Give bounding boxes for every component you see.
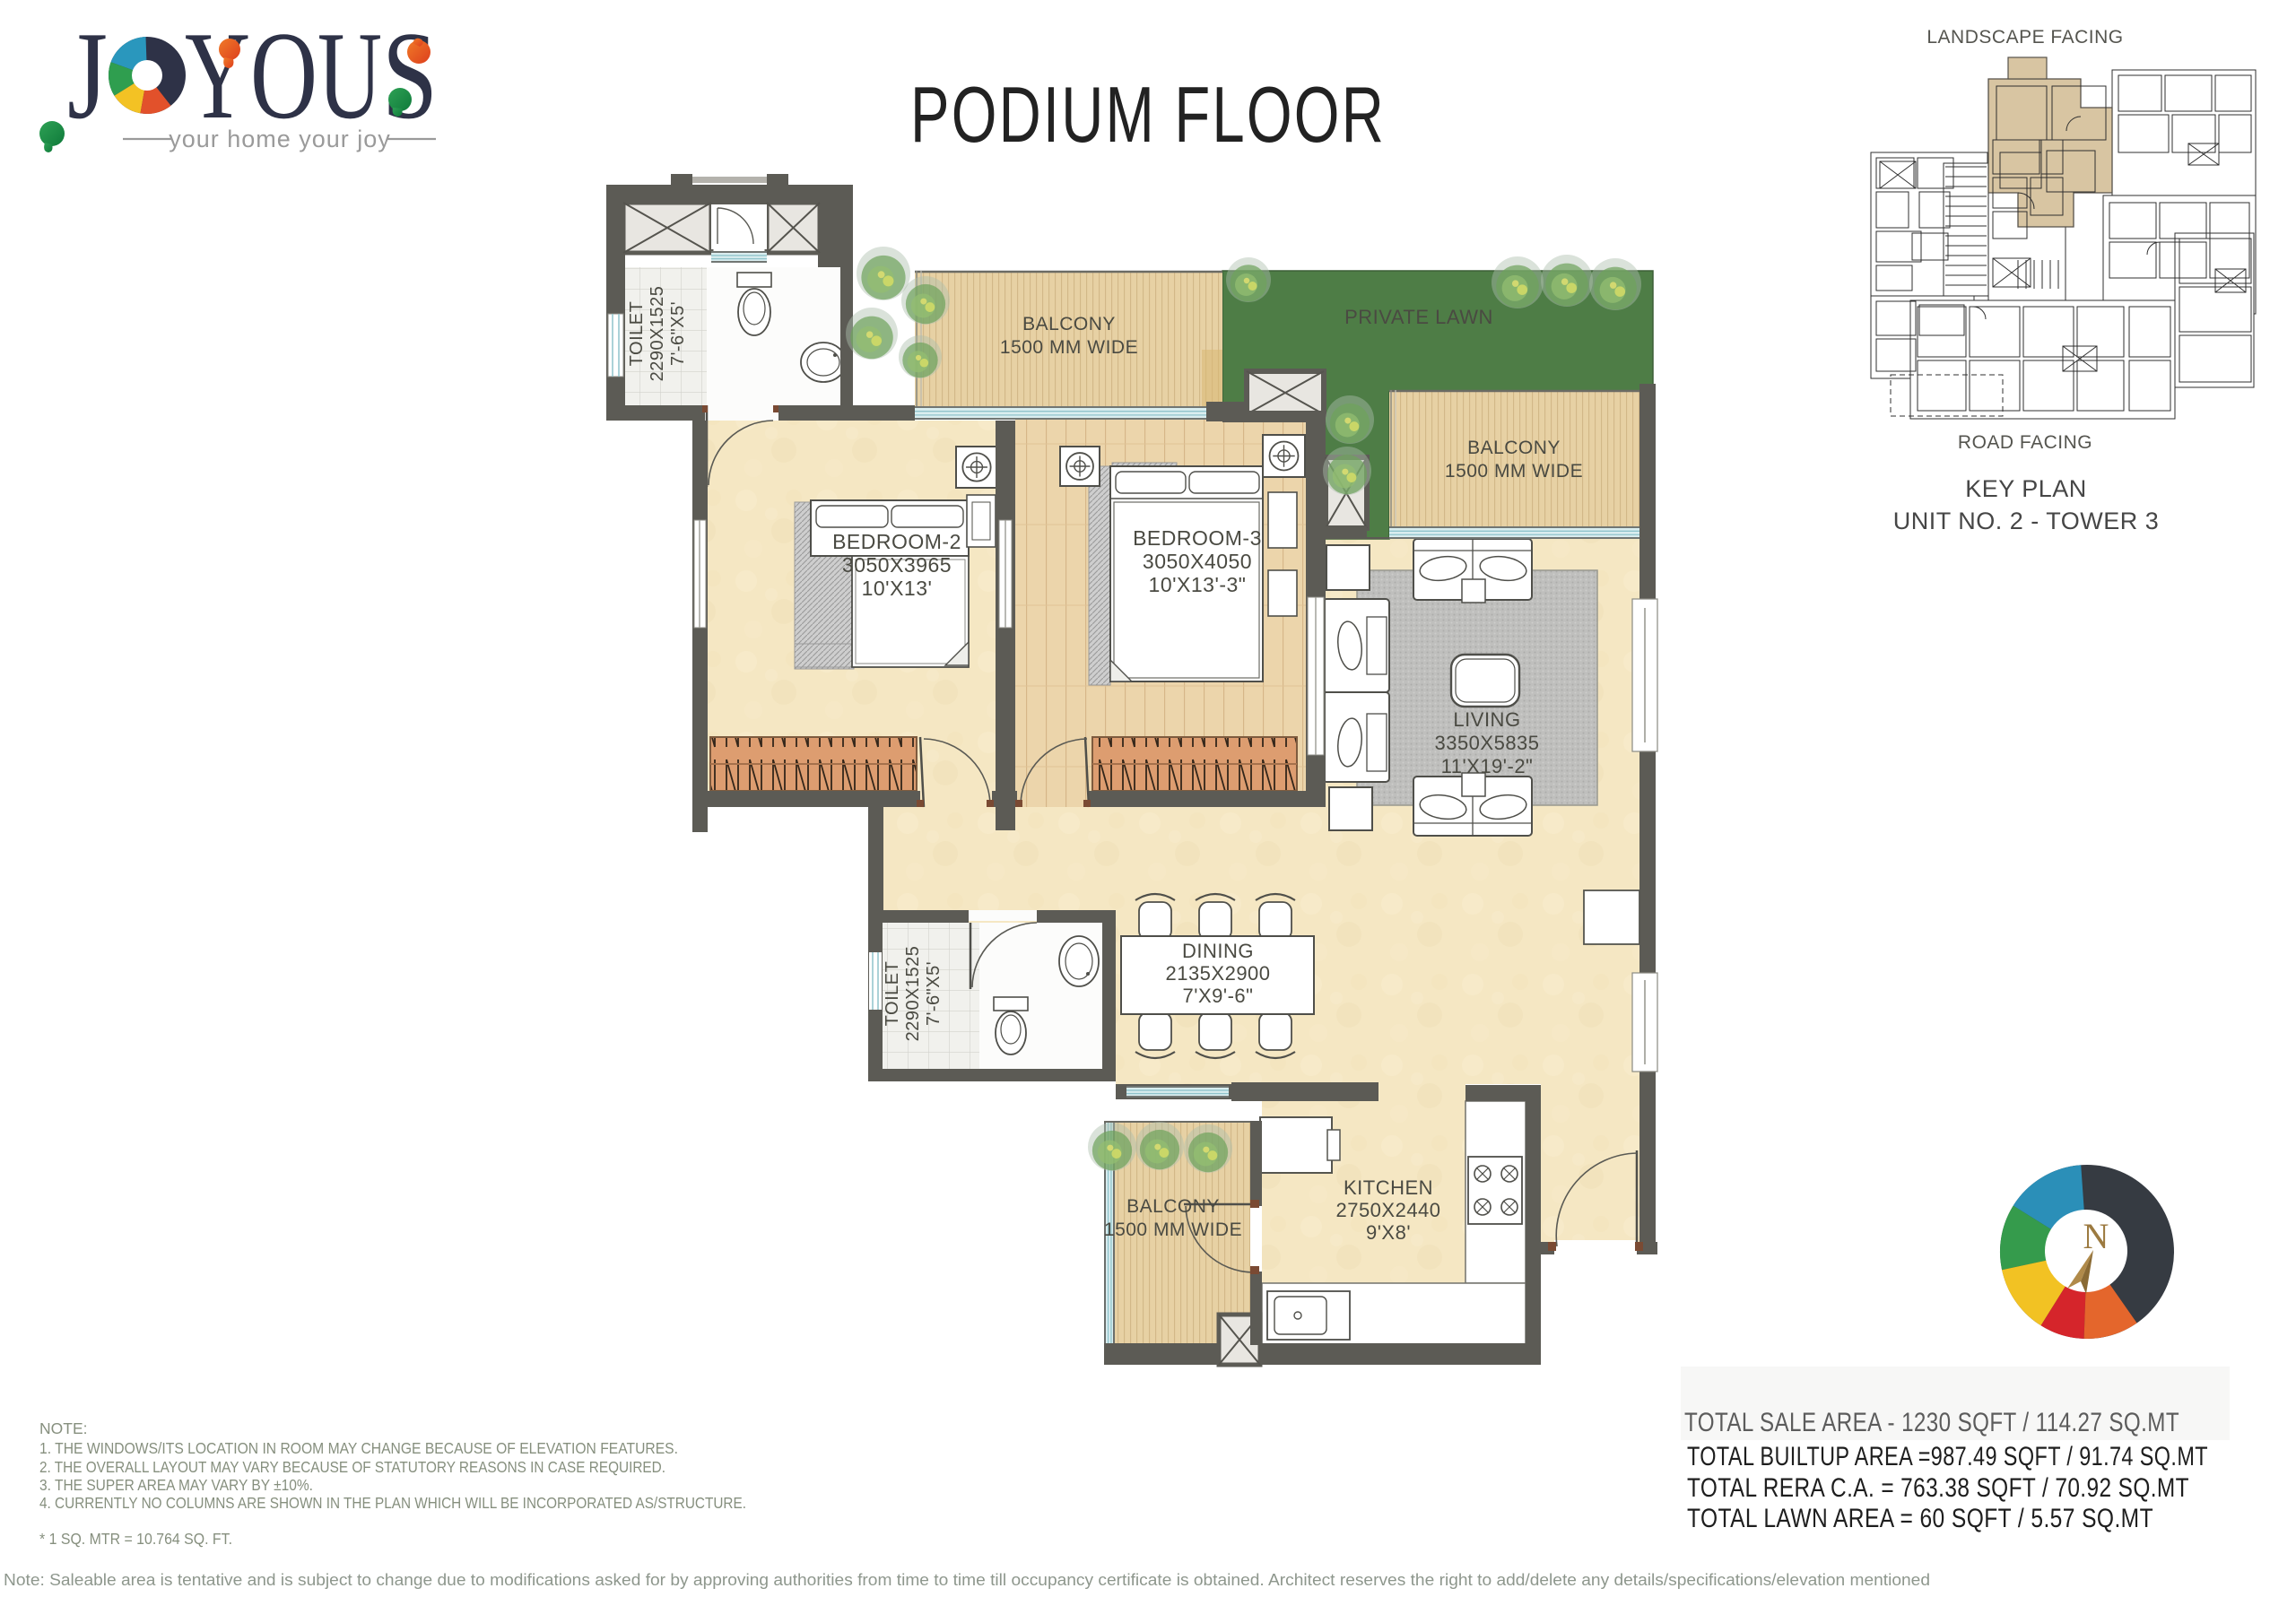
svg-text:PODIUM FLOOR: PODIUM FLOOR xyxy=(910,70,1386,159)
svg-text:* 1 SQ. MTR = 10.764 SQ. FT.: * 1 SQ. MTR = 10.764 SQ. FT. xyxy=(39,1530,232,1548)
svg-text:BALCONY: BALCONY xyxy=(1022,314,1116,334)
svg-text:2. THE OVERALL LAYOUT MAY VARY: 2. THE OVERALL LAYOUT MAY VARY BECAUSE O… xyxy=(39,1458,665,1476)
svg-text:Note: Saleable area is tentati: Note: Saleable area is tentative and is … xyxy=(4,1570,1930,1589)
svg-text:9'X8': 9'X8' xyxy=(1366,1221,1411,1244)
svg-text:BALCONY: BALCONY xyxy=(1467,438,1561,458)
svg-text:BALCONY: BALCONY xyxy=(1126,1196,1220,1217)
svg-text:1500 MM WIDE: 1500 MM WIDE xyxy=(1445,461,1583,482)
svg-text:10'X13': 10'X13' xyxy=(862,577,933,600)
svg-text:TOTAL RERA C.A. = 763.38 SQFT: TOTAL RERA C.A. = 763.38 SQFT / 70.92 SQ… xyxy=(1687,1473,2189,1503)
svg-text:ROAD FACING: ROAD FACING xyxy=(1958,432,2092,453)
svg-text:O: O xyxy=(250,6,317,145)
svg-text:LIVING: LIVING xyxy=(1453,708,1520,731)
svg-text:2135X2900: 2135X2900 xyxy=(1165,962,1270,985)
svg-text:TOTAL BUILTUP AREA =987.49 SQF: TOTAL BUILTUP AREA =987.49 SQFT / 91.74 … xyxy=(1687,1442,2208,1471)
svg-text:LANDSCAPE FACING: LANDSCAPE FACING xyxy=(1926,27,2123,48)
svg-text:NOTE:: NOTE: xyxy=(39,1419,87,1437)
svg-text:J: J xyxy=(67,6,108,145)
svg-text:TOTAL LAWN AREA = 60 SQFT / 5.: TOTAL LAWN AREA = 60 SQFT / 5.57 SQ.MT xyxy=(1687,1504,2153,1533)
svg-text:KEY PLAN: KEY PLAN xyxy=(1965,475,2087,502)
svg-text:S: S xyxy=(382,6,438,145)
svg-text:10'X13'-3": 10'X13'-3" xyxy=(1149,573,1247,596)
svg-text:1500 MM WIDE: 1500 MM WIDE xyxy=(1104,1219,1242,1240)
svg-text:3050X3965: 3050X3965 xyxy=(842,553,952,577)
svg-text:PRIVATE LAWN: PRIVATE LAWN xyxy=(1344,306,1493,328)
svg-text:U: U xyxy=(317,6,382,145)
svg-text:2290X1525: 2290X1525 xyxy=(903,946,923,1042)
svg-text:3350X5835: 3350X5835 xyxy=(1434,732,1539,754)
svg-text:KITCHEN: KITCHEN xyxy=(1344,1176,1433,1199)
svg-text:7'-6"X5': 7'-6"X5' xyxy=(668,301,688,366)
svg-text:TOTAL SALE AREA - 1230 SQFT /: TOTAL SALE AREA - 1230 SQFT / 114.27 SQ.… xyxy=(1684,1408,2179,1437)
svg-text:DINING: DINING xyxy=(1182,940,1254,962)
svg-text:4. CURRENTLY NO COLUMNS ARE SH: 4. CURRENTLY NO COLUMNS ARE SHOWN IN THE… xyxy=(39,1494,746,1512)
svg-text:7'-6"X5': 7'-6"X5' xyxy=(924,961,944,1026)
svg-text:2290X1525: 2290X1525 xyxy=(648,286,667,382)
svg-text:your home your joy: your home your joy xyxy=(169,126,391,152)
svg-text:1500 MM WIDE: 1500 MM WIDE xyxy=(1000,337,1138,358)
svg-text:Y: Y xyxy=(185,6,250,145)
svg-text:BEDROOM-2: BEDROOM-2 xyxy=(832,530,961,553)
svg-text:11'X19'-2": 11'X19'-2" xyxy=(1441,755,1534,777)
svg-text:N: N xyxy=(2083,1216,2109,1256)
svg-text:2750X2440: 2750X2440 xyxy=(1335,1199,1440,1221)
svg-text:7'X9'-6": 7'X9'-6" xyxy=(1183,985,1254,1007)
svg-text:TOILET: TOILET xyxy=(883,961,902,1027)
svg-text:UNIT NO. 2 - TOWER 3: UNIT NO. 2 - TOWER 3 xyxy=(1893,508,2160,534)
svg-text:3. THE SUPER AREA MAY VARY BY: 3. THE SUPER AREA MAY VARY BY ±10%. xyxy=(39,1476,313,1494)
svg-text:3050X4050: 3050X4050 xyxy=(1143,550,1252,573)
svg-text:BEDROOM-3: BEDROOM-3 xyxy=(1133,526,1262,550)
svg-text:TOILET: TOILET xyxy=(627,301,647,367)
svg-text:1. THE WINDOWS/ITS LOCATION IN: 1. THE WINDOWS/ITS LOCATION IN ROOM MAY … xyxy=(39,1439,678,1457)
